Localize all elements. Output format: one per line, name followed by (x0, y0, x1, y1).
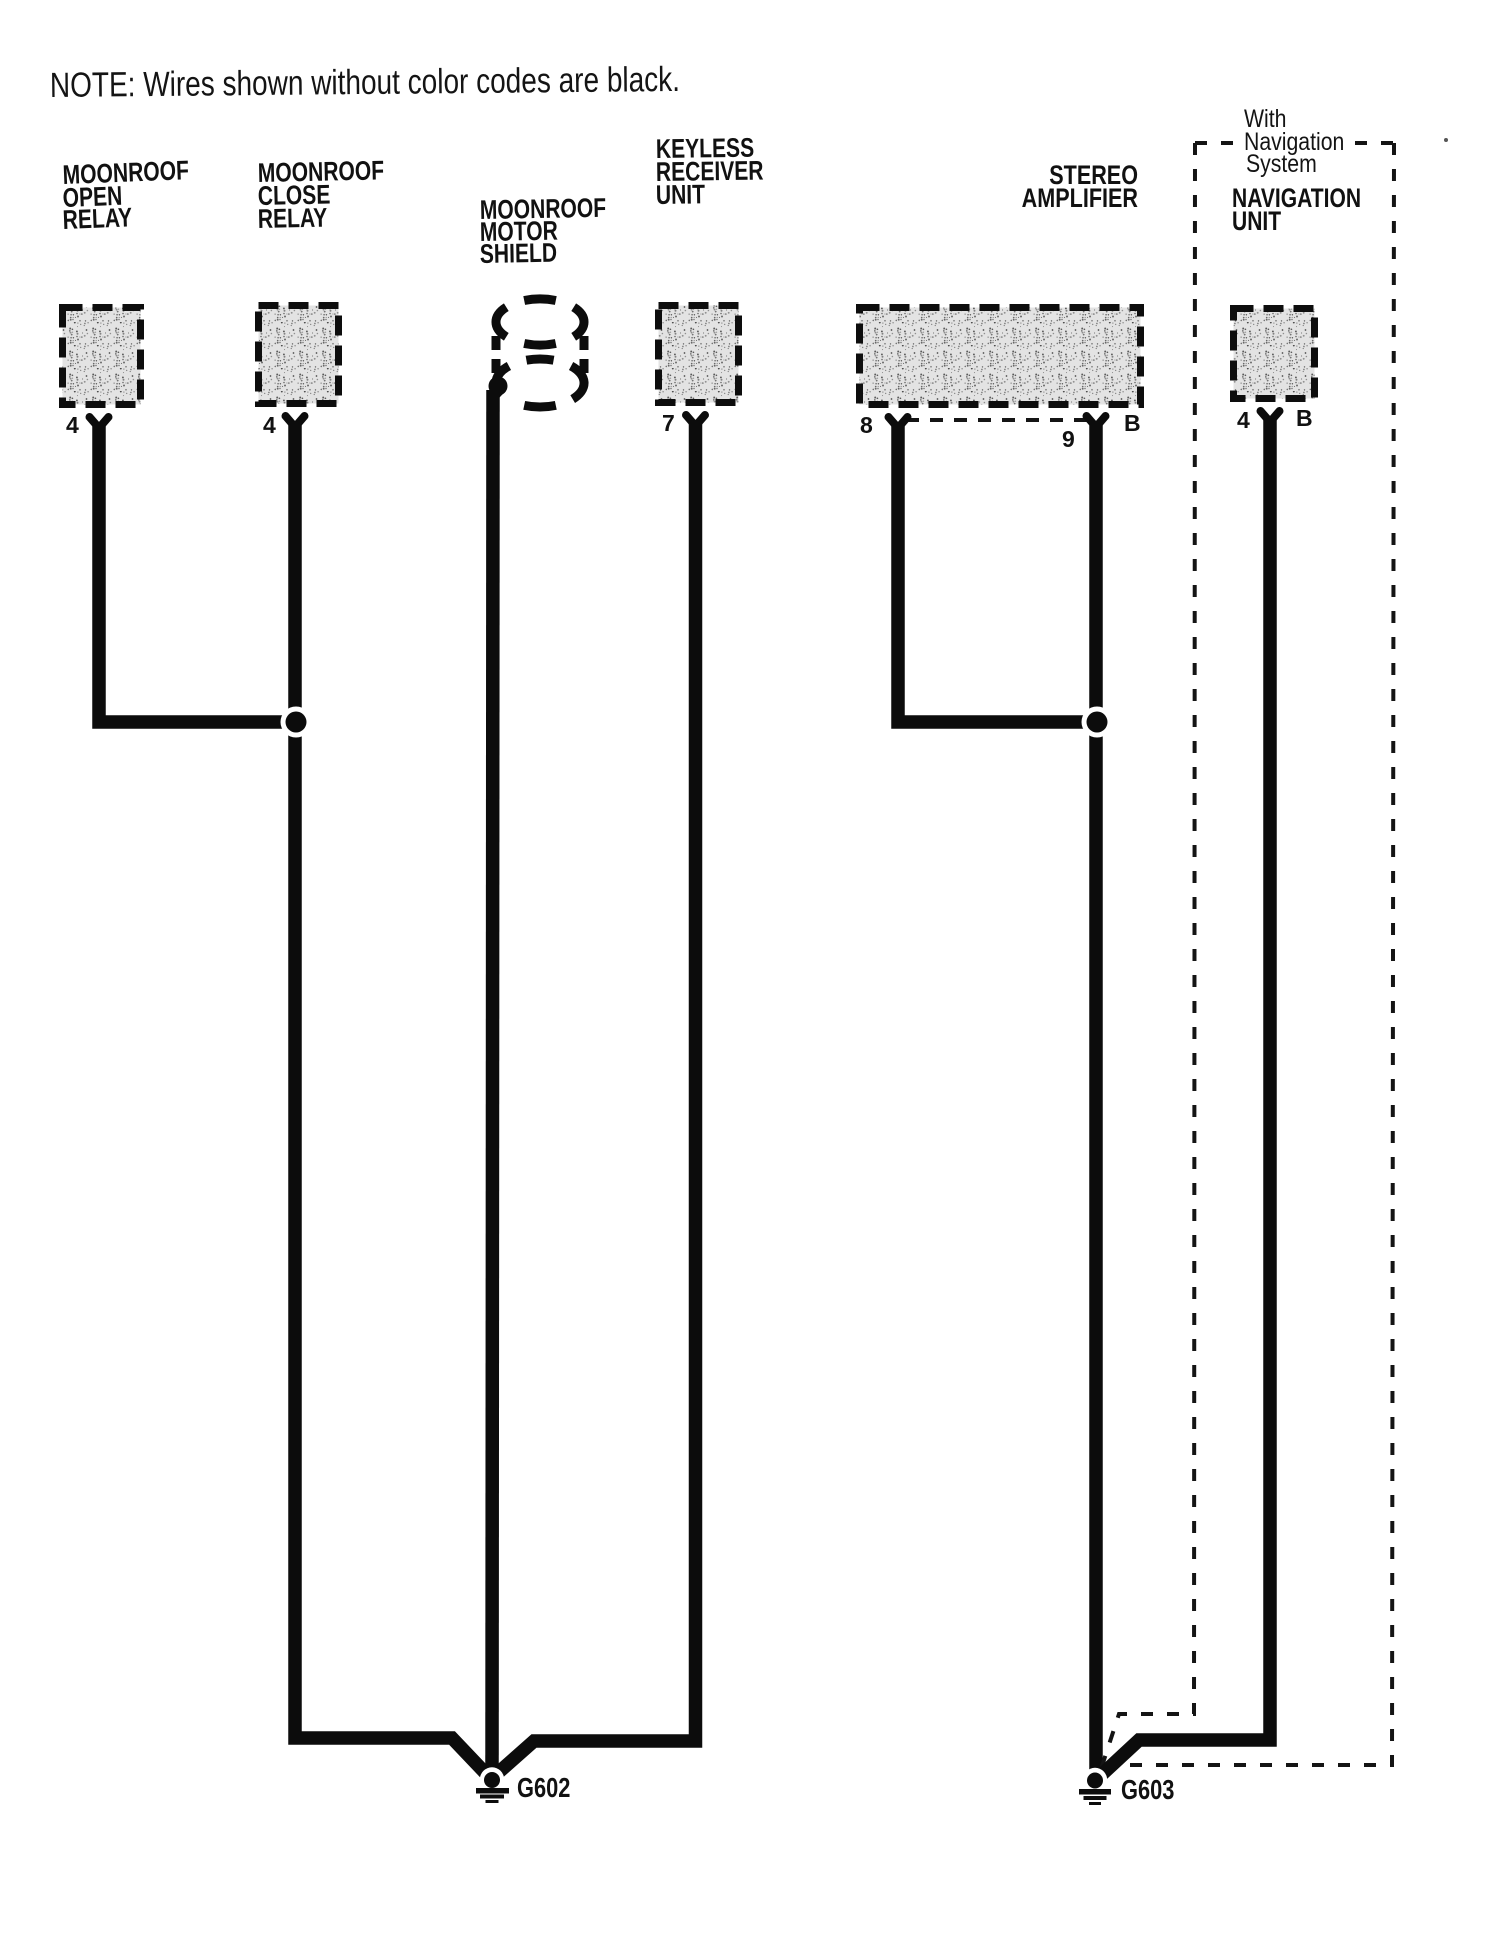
svg-text:NOTE: Wires shown without colo: NOTE: Wires shown without color codes ar… (50, 59, 680, 105)
svg-text:4: 4 (66, 412, 79, 438)
svg-text:B: B (1296, 405, 1313, 431)
svg-text:SHIELD: SHIELD (480, 238, 558, 269)
svg-text:9: 9 (1062, 426, 1075, 452)
svg-text:G602: G602 (517, 1772, 570, 1803)
svg-text:RELAY: RELAY (62, 203, 133, 236)
svg-text:4: 4 (263, 412, 276, 438)
svg-text:RELAY: RELAY (258, 203, 328, 235)
svg-text:8: 8 (860, 412, 873, 438)
svg-text:AMPLIFIER: AMPLIFIER (1022, 184, 1139, 214)
svg-text:UNIT: UNIT (1232, 207, 1281, 237)
svg-text:G603: G603 (1121, 1774, 1174, 1805)
svg-text:7: 7 (662, 410, 675, 436)
svg-text:System: System (1246, 149, 1317, 177)
svg-text:4: 4 (1237, 407, 1250, 433)
svg-text:B: B (1124, 410, 1141, 436)
svg-text:UNIT: UNIT (656, 180, 706, 211)
